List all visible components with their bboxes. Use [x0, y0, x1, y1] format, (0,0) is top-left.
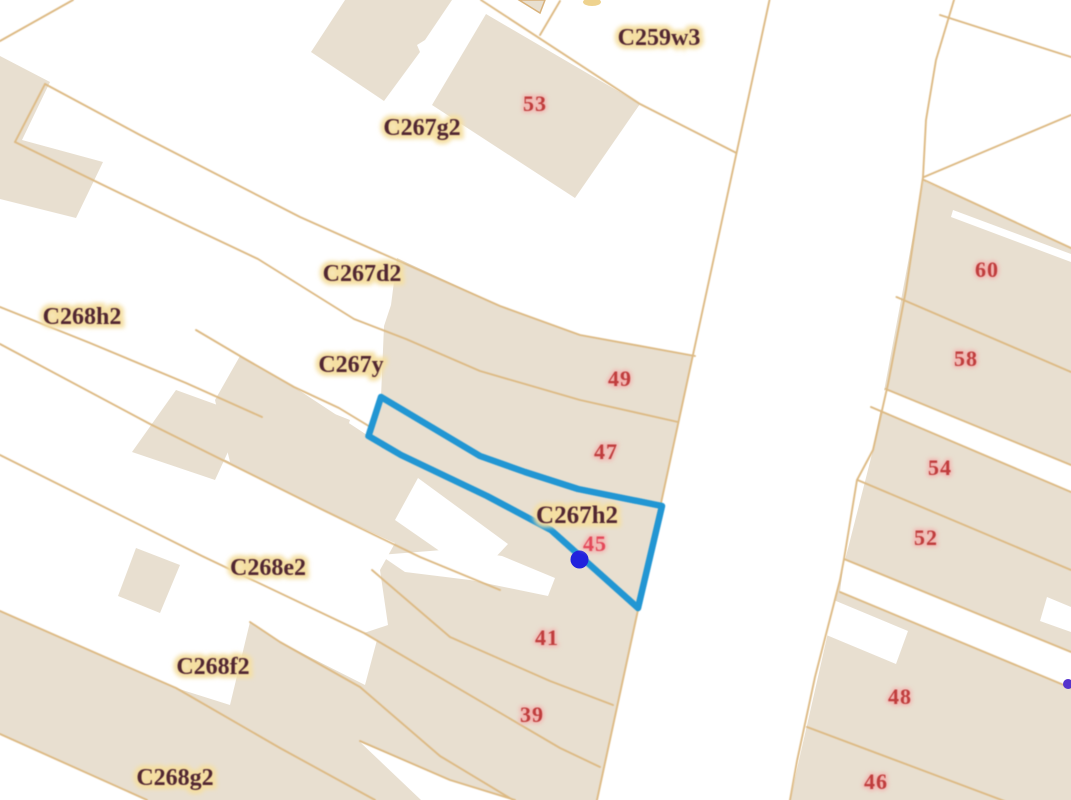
svg-text:39: 39	[520, 702, 544, 727]
svg-text:C267d2: C267d2	[323, 261, 402, 287]
svg-text:C267y: C267y	[318, 352, 383, 378]
svg-text:54: 54	[928, 455, 952, 480]
svg-text:41: 41	[535, 625, 559, 650]
svg-text:48: 48	[888, 684, 912, 709]
svg-text:C268f2: C268f2	[176, 654, 249, 680]
svg-text:47: 47	[594, 439, 618, 464]
svg-text:53: 53	[523, 91, 547, 116]
svg-text:C268g2: C268g2	[136, 765, 213, 791]
svg-text:49: 49	[608, 366, 632, 391]
svg-text:58: 58	[954, 346, 978, 371]
svg-text:C268e2: C268e2	[230, 555, 306, 581]
svg-text:60: 60	[975, 257, 999, 282]
svg-text:C267g2: C267g2	[383, 115, 460, 141]
svg-text:45: 45	[583, 531, 607, 556]
svg-text:46: 46	[864, 769, 888, 794]
svg-text:C268h2: C268h2	[43, 304, 122, 330]
svg-text:C259w3: C259w3	[618, 25, 701, 51]
svg-text:52: 52	[914, 525, 938, 550]
svg-text:C267h2: C267h2	[536, 502, 618, 529]
